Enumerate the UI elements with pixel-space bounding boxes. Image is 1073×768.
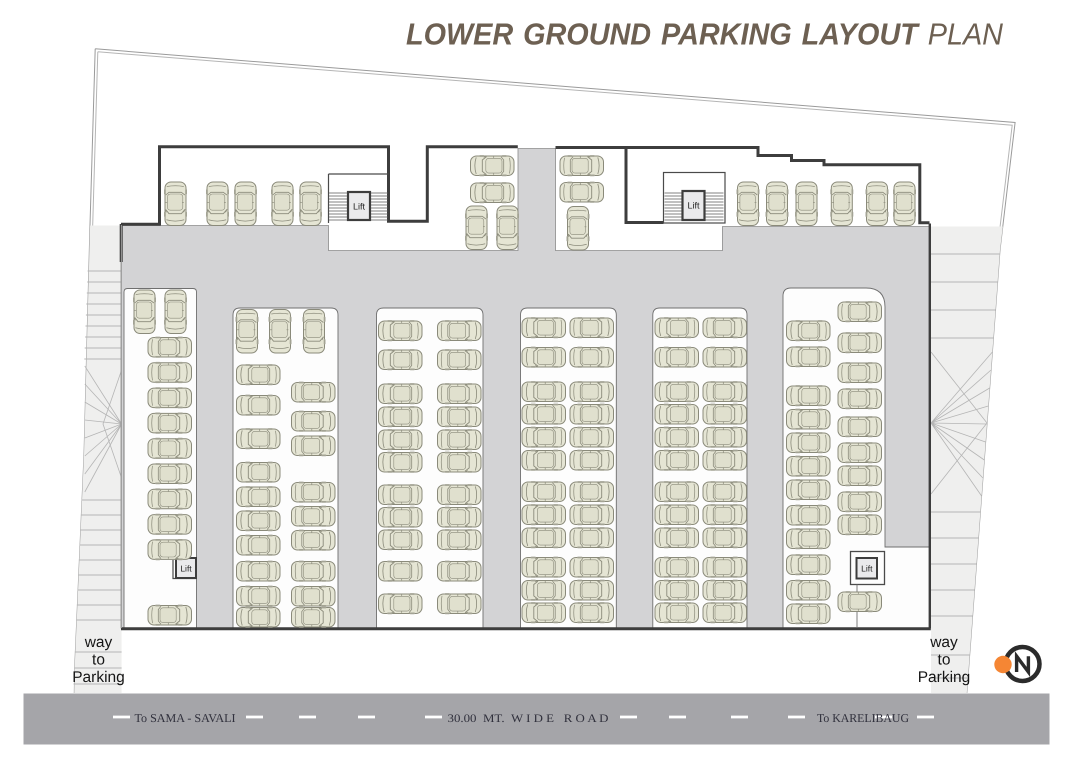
svg-text:to: to bbox=[92, 652, 105, 669]
svg-text:Parking: Parking bbox=[72, 669, 125, 686]
svg-text:Lift: Lift bbox=[861, 564, 873, 574]
svg-text:Lift: Lift bbox=[180, 564, 192, 574]
svg-text:To KARELIBAUG: To KARELIBAUG bbox=[817, 711, 909, 725]
svg-text:Parking: Parking bbox=[918, 669, 971, 686]
svg-text:way: way bbox=[84, 634, 113, 651]
svg-text:LOWER GROUND PARKING LAYOUT PL: LOWER GROUND PARKING LAYOUT PLAN bbox=[406, 18, 1004, 52]
svg-text:Lift: Lift bbox=[687, 201, 700, 211]
svg-text:30.00 MT. W I D E R O A D: 30.00 MT. W I D E R O A D bbox=[448, 713, 609, 725]
svg-text:Lift: Lift bbox=[353, 202, 366, 212]
svg-text:to: to bbox=[938, 652, 951, 669]
svg-text:To SAMA - SAVALI: To SAMA - SAVALI bbox=[135, 711, 236, 725]
svg-text:way: way bbox=[929, 634, 958, 651]
